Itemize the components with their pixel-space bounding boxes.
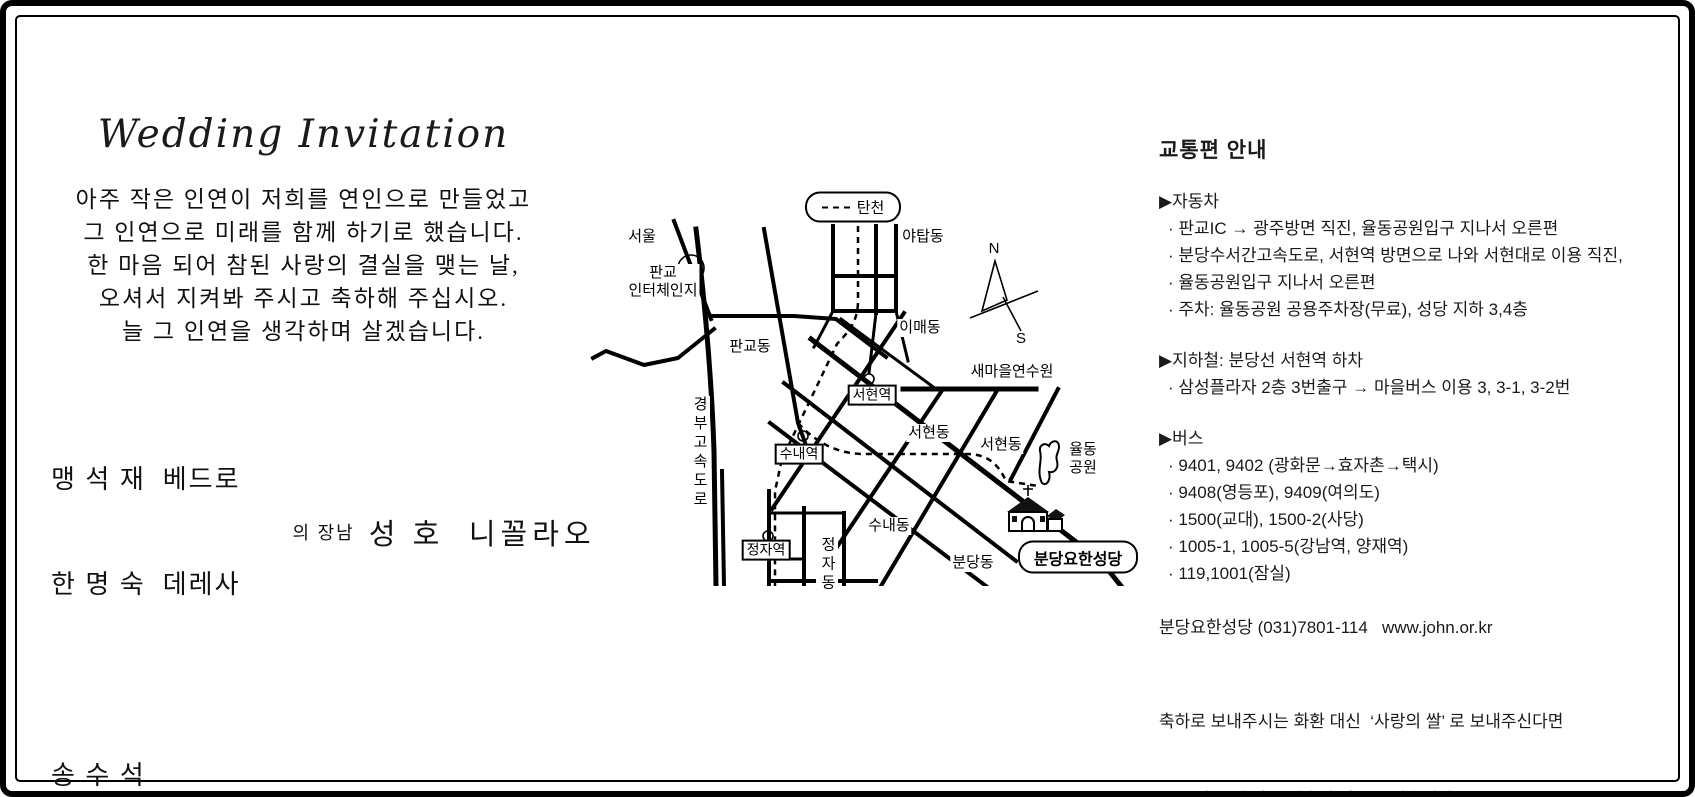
- wedding-invitation-card: Wedding Invitation 아주 작은 인연이 저희를 연인으로 만들…: [0, 0, 1695, 797]
- label-seohyeon-dong-1: 서현동: [906, 424, 951, 442]
- car-item: · 판교IC → 광주방면 직진, 율동공원입구 지나서 오른편: [1159, 215, 1689, 242]
- church-name-bubble: 분당요한성당: [1018, 541, 1138, 574]
- invitation-column: Wedding Invitation 아주 작은 인연이 저희를 연인으로 만들…: [51, 112, 556, 797]
- location-map: 탄천 서울 판교 인터체인지 판교동 야탑동 이매동 새마을연수원 N S 경부…: [546, 161, 1146, 586]
- groom-family-row: 맹 석 재 베드로 한 명 숙 데레사 의 장남 성 호 니꼴라오: [51, 392, 556, 672]
- label-imae-dong: 이매동: [897, 319, 942, 337]
- invitation-title: Wedding Invitation: [51, 112, 556, 157]
- stream-dash-icon: [822, 206, 850, 208]
- station-jeongja: 정자역: [742, 540, 791, 561]
- label-saemaeul: 새마을연수원: [969, 363, 1056, 381]
- subway-item: · 삼성플라자 2층 3번출구 → 마을버스 이용 3, 3-1, 3-2번: [1159, 374, 1689, 401]
- label-seoul: 서울: [626, 228, 658, 246]
- bride-family-row: 송 수 석 최 영 숙 에우프라시아 의 장녀 수 지 이사벨라: [51, 688, 556, 797]
- label-yuldong-park: 율동 공원: [1067, 441, 1099, 477]
- car-item: · 분당수서간고속도로, 서현역 방면으로 나와 서현대로 이용 직진,: [1159, 242, 1689, 269]
- label-pangyo-ic-line1: 판교: [628, 264, 697, 282]
- message-line: 오셔서 지켜봐 주시고 축하해 주십시오.: [51, 282, 556, 315]
- message-line: 아주 작은 인연이 저희를 연인으로 만들었고: [51, 183, 556, 216]
- directions-bus-section: ▶버스 · 9401, 9402 (광화문→효자촌→택시) · 9408(영등포…: [1159, 425, 1689, 587]
- groom-relation: 의 장남: [293, 519, 355, 545]
- yuldong-park-shape: [1039, 441, 1059, 484]
- gift-note-line: 축하로 보내주시는 화환 대신 ‘사랑의 쌀’ 로 보내주신다면: [1159, 709, 1689, 735]
- label-bundang-dong: 분당동: [950, 554, 995, 572]
- groom-parents: 맹 석 재 베드로 한 명 숙 데레사: [51, 392, 241, 672]
- gift-note: 축하로 보내주시는 화환 대신 ‘사랑의 쌀’ 로 보내주신다면 좋은 날 소외…: [1159, 657, 1689, 797]
- car-item: · 주차: 율동공원 공용주차장(무료), 성당 지하 3,4층: [1159, 296, 1689, 323]
- bus-item: · 1005-1, 1005-5(강남역, 양재역): [1159, 533, 1689, 560]
- map-legend: 탄천: [805, 192, 901, 223]
- groom-mother: 한 명 숙 데레사: [51, 567, 241, 602]
- compass-north-label: N: [987, 240, 1002, 258]
- bus-item: · 1500(교대), 1500-2(사당): [1159, 506, 1689, 533]
- invitation-message: 아주 작은 인연이 저희를 연인으로 만들었고 그 인연으로 미래를 함께 하기…: [51, 183, 556, 348]
- label-pangyo-ic-line2: 인터체인지: [628, 282, 697, 300]
- label-yuldong-line1: 율동: [1069, 441, 1097, 459]
- subway-heading: ▶지하철: 분당선 서현역 하차: [1159, 347, 1689, 374]
- label-seohyeon-dong-2: 서현동: [978, 436, 1023, 454]
- gift-note-line: 좋은 날 소외 받는 이웃과 나누고 싶습니다.: [1159, 787, 1689, 797]
- station-sunae: 수내역: [775, 444, 824, 465]
- directions-title: 교통편 안내: [1159, 134, 1689, 164]
- directions-column: 교통편 안내 ▶자동차 · 판교IC → 광주방면 직진, 율동공원입구 지나서…: [1159, 134, 1689, 797]
- bus-item: · 9401, 9402 (광화문→효자촌→택시): [1159, 452, 1689, 479]
- map-roads-graphic: [546, 161, 1146, 586]
- bride-parents: 송 수 석 최 영 숙 에우프라시아: [51, 688, 318, 797]
- directions-car-section: ▶자동차 · 판교IC → 광주방면 직진, 율동공원입구 지나서 오른편 · …: [1159, 188, 1689, 323]
- label-jeongja-dong: 정자동: [816, 537, 838, 594]
- message-line: 그 인연으로 미래를 함께 하기로 했습니다.: [51, 216, 556, 249]
- family-names: 맹 석 재 베드로 한 명 숙 데레사 의 장남 성 호 니꼴라오 송 수 석 …: [51, 392, 556, 797]
- bus-item: · 119,1001(잠실): [1159, 560, 1689, 587]
- bus-heading: ▶버스: [1159, 425, 1689, 452]
- label-pangyo-dong: 판교동: [727, 338, 772, 356]
- bride-father: 송 수 석: [51, 758, 318, 793]
- label-yuldong-line2: 공원: [1069, 459, 1097, 477]
- car-item: · 율동공원입구 지나서 오른편: [1159, 269, 1689, 296]
- message-line: 한 마음 되어 참된 사랑의 결실을 맺는 날,: [51, 249, 556, 282]
- label-pangyo-ic: 판교 인터체인지: [626, 264, 699, 300]
- label-gyeongbu-expressway: 경부고속도로: [688, 396, 710, 510]
- car-heading: ▶자동차: [1159, 188, 1689, 215]
- message-line: 늘 그 인연을 생각하며 살겠습니다.: [51, 315, 556, 348]
- legend-label: 탄천: [857, 197, 885, 218]
- bus-item: · 9408(영등포), 9409(여의도): [1159, 479, 1689, 506]
- label-yatap-dong: 야탑동: [900, 228, 945, 246]
- church-contact: 분당요한성당 (031)7801-114 www.john.or.kr: [1159, 614, 1689, 641]
- directions-subway-section: ▶지하철: 분당선 서현역 하차 · 삼성플라자 2층 3번출구 → 마을버스 …: [1159, 347, 1689, 401]
- label-sunae-dong: 수내동: [866, 517, 911, 535]
- compass-south-label: S: [1014, 330, 1028, 348]
- church-icon: [1007, 485, 1065, 531]
- compass-needle: [970, 261, 1038, 331]
- groom-father: 맹 석 재 베드로: [51, 462, 241, 497]
- station-seohyeon: 서현역: [848, 385, 897, 406]
